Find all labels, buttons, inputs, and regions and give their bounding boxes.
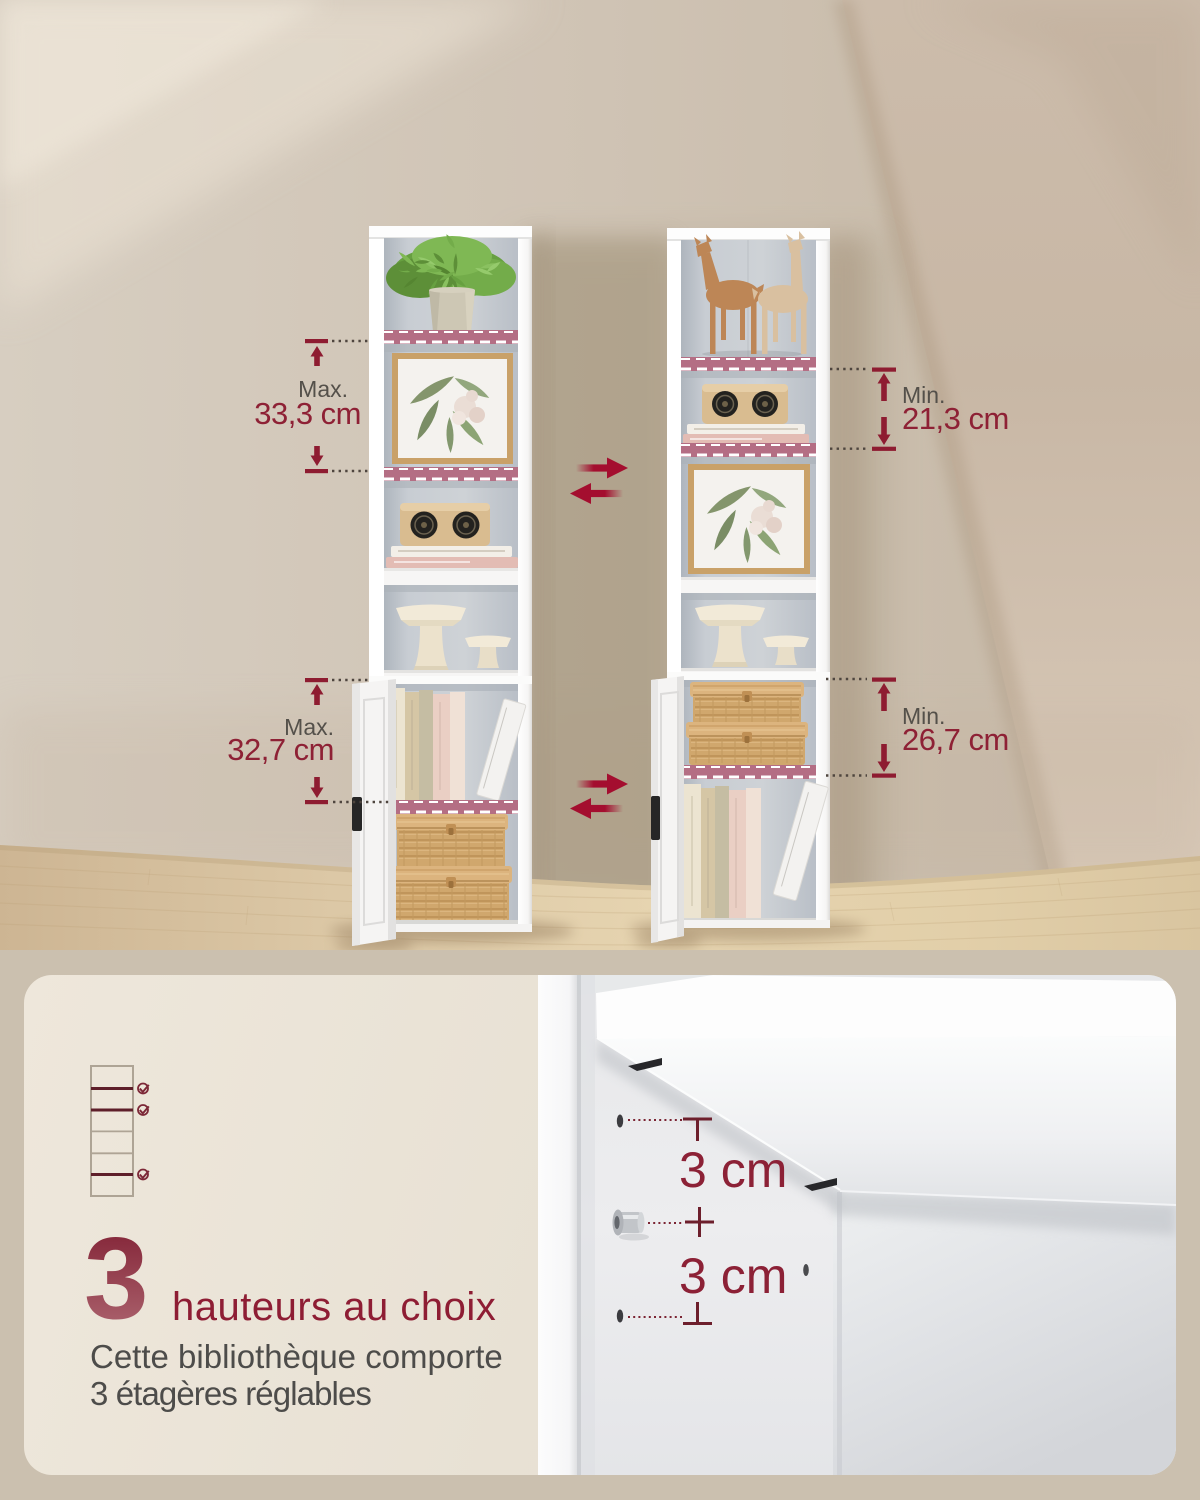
svg-text:21,3 cm: 21,3 cm bbox=[902, 401, 1009, 436]
svg-text:Cette bibliothèque comporte: Cette bibliothèque comporte bbox=[90, 1338, 503, 1375]
svg-text:3 cm: 3 cm bbox=[679, 1142, 787, 1198]
svg-text:3 cm: 3 cm bbox=[679, 1248, 787, 1304]
svg-text:26,7 cm: 26,7 cm bbox=[902, 722, 1009, 757]
svg-text:32,7 cm: 32,7 cm bbox=[227, 732, 334, 767]
svg-text:33,3 cm: 33,3 cm bbox=[254, 396, 361, 431]
svg-text:hauteurs au choix: hauteurs au choix bbox=[172, 1285, 496, 1329]
svg-text:3: 3 bbox=[84, 1213, 149, 1343]
svg-text:3 étagères réglables: 3 étagères réglables bbox=[90, 1375, 371, 1412]
